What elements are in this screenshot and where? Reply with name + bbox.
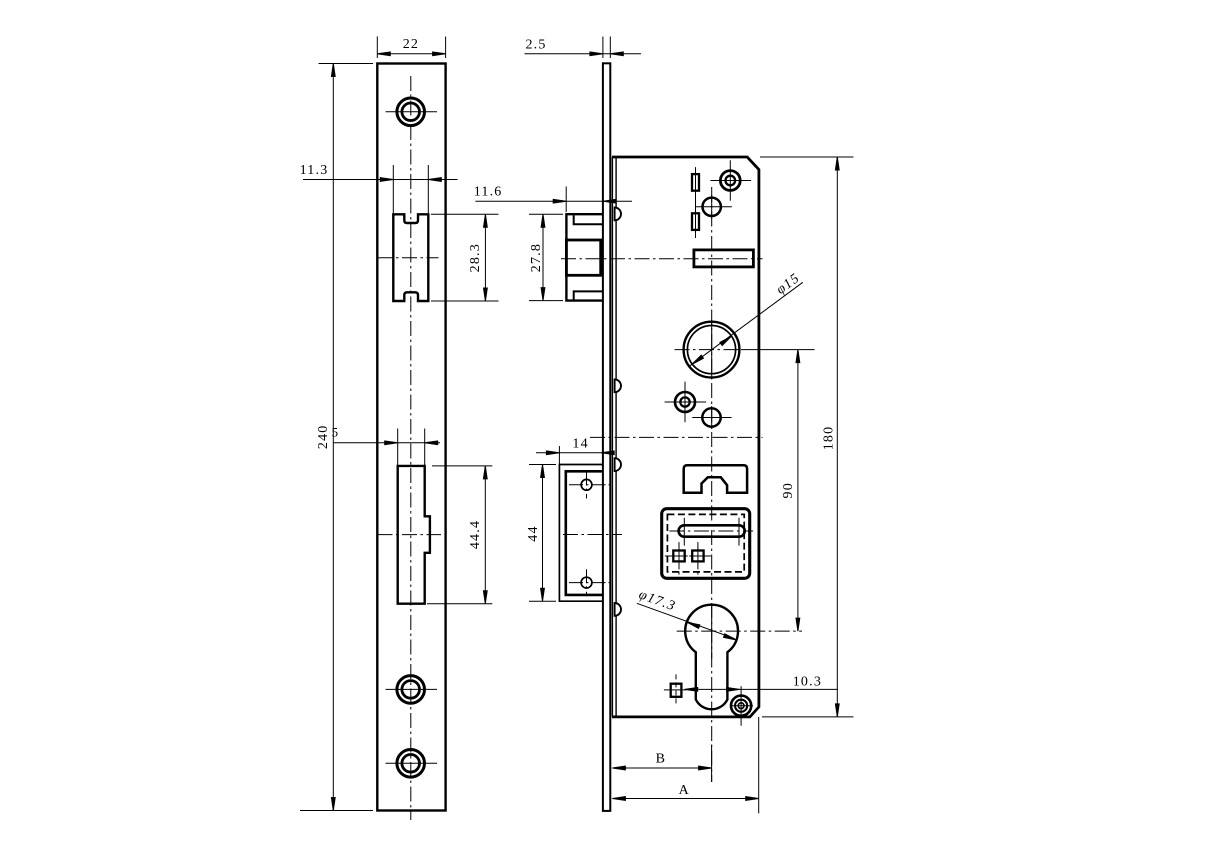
svg-text:240: 240 bbox=[316, 424, 331, 449]
svg-text:27.8: 27.8 bbox=[529, 243, 544, 272]
svg-text:44.4: 44.4 bbox=[468, 520, 483, 549]
svg-text:14: 14 bbox=[572, 437, 588, 452]
svg-text:φ15: φ15 bbox=[774, 271, 803, 298]
svg-text:B: B bbox=[656, 752, 667, 767]
svg-text:28.3: 28.3 bbox=[468, 243, 483, 272]
svg-text:44: 44 bbox=[526, 525, 541, 541]
svg-text:11.3: 11.3 bbox=[300, 163, 329, 178]
svg-text:22: 22 bbox=[403, 37, 419, 52]
svg-text:11.6: 11.6 bbox=[474, 184, 503, 199]
svg-text:5: 5 bbox=[332, 425, 340, 440]
svg-text:A: A bbox=[679, 783, 690, 798]
svg-text:180: 180 bbox=[821, 426, 836, 451]
svg-text:10.3: 10.3 bbox=[793, 674, 822, 689]
svg-text:90: 90 bbox=[781, 482, 796, 498]
svg-text:2.5: 2.5 bbox=[525, 38, 546, 53]
